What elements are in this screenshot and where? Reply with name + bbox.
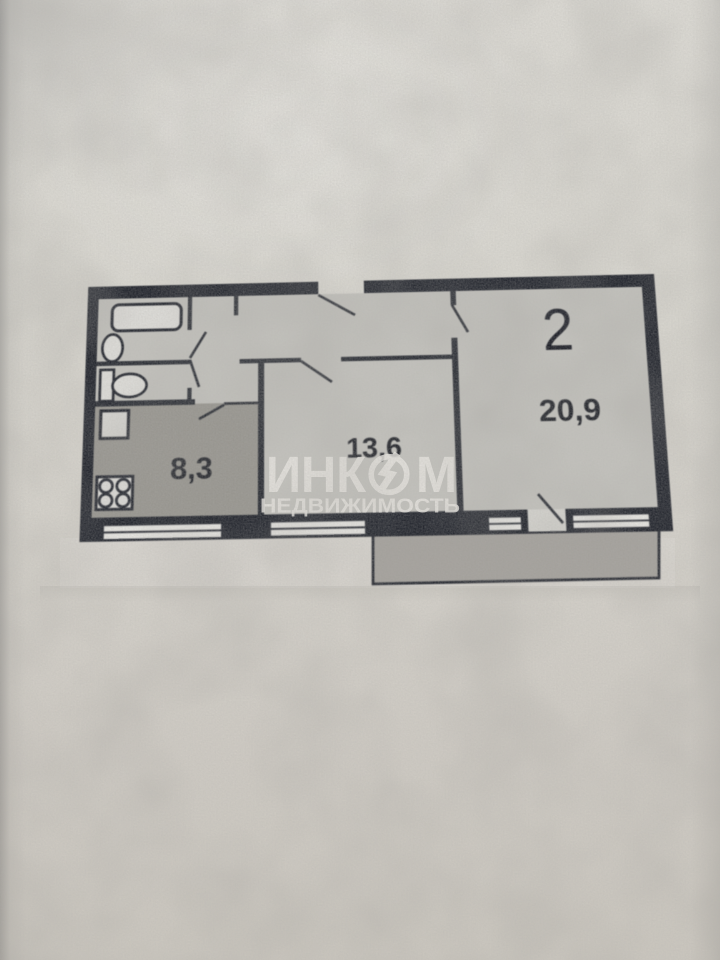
svg-text:НЕДВИЖИМОСТЬ: НЕДВИЖИМОСТЬ: [260, 496, 460, 518]
svg-text:ИНК: ИНК: [266, 446, 367, 503]
svg-text:М: М: [416, 446, 457, 503]
